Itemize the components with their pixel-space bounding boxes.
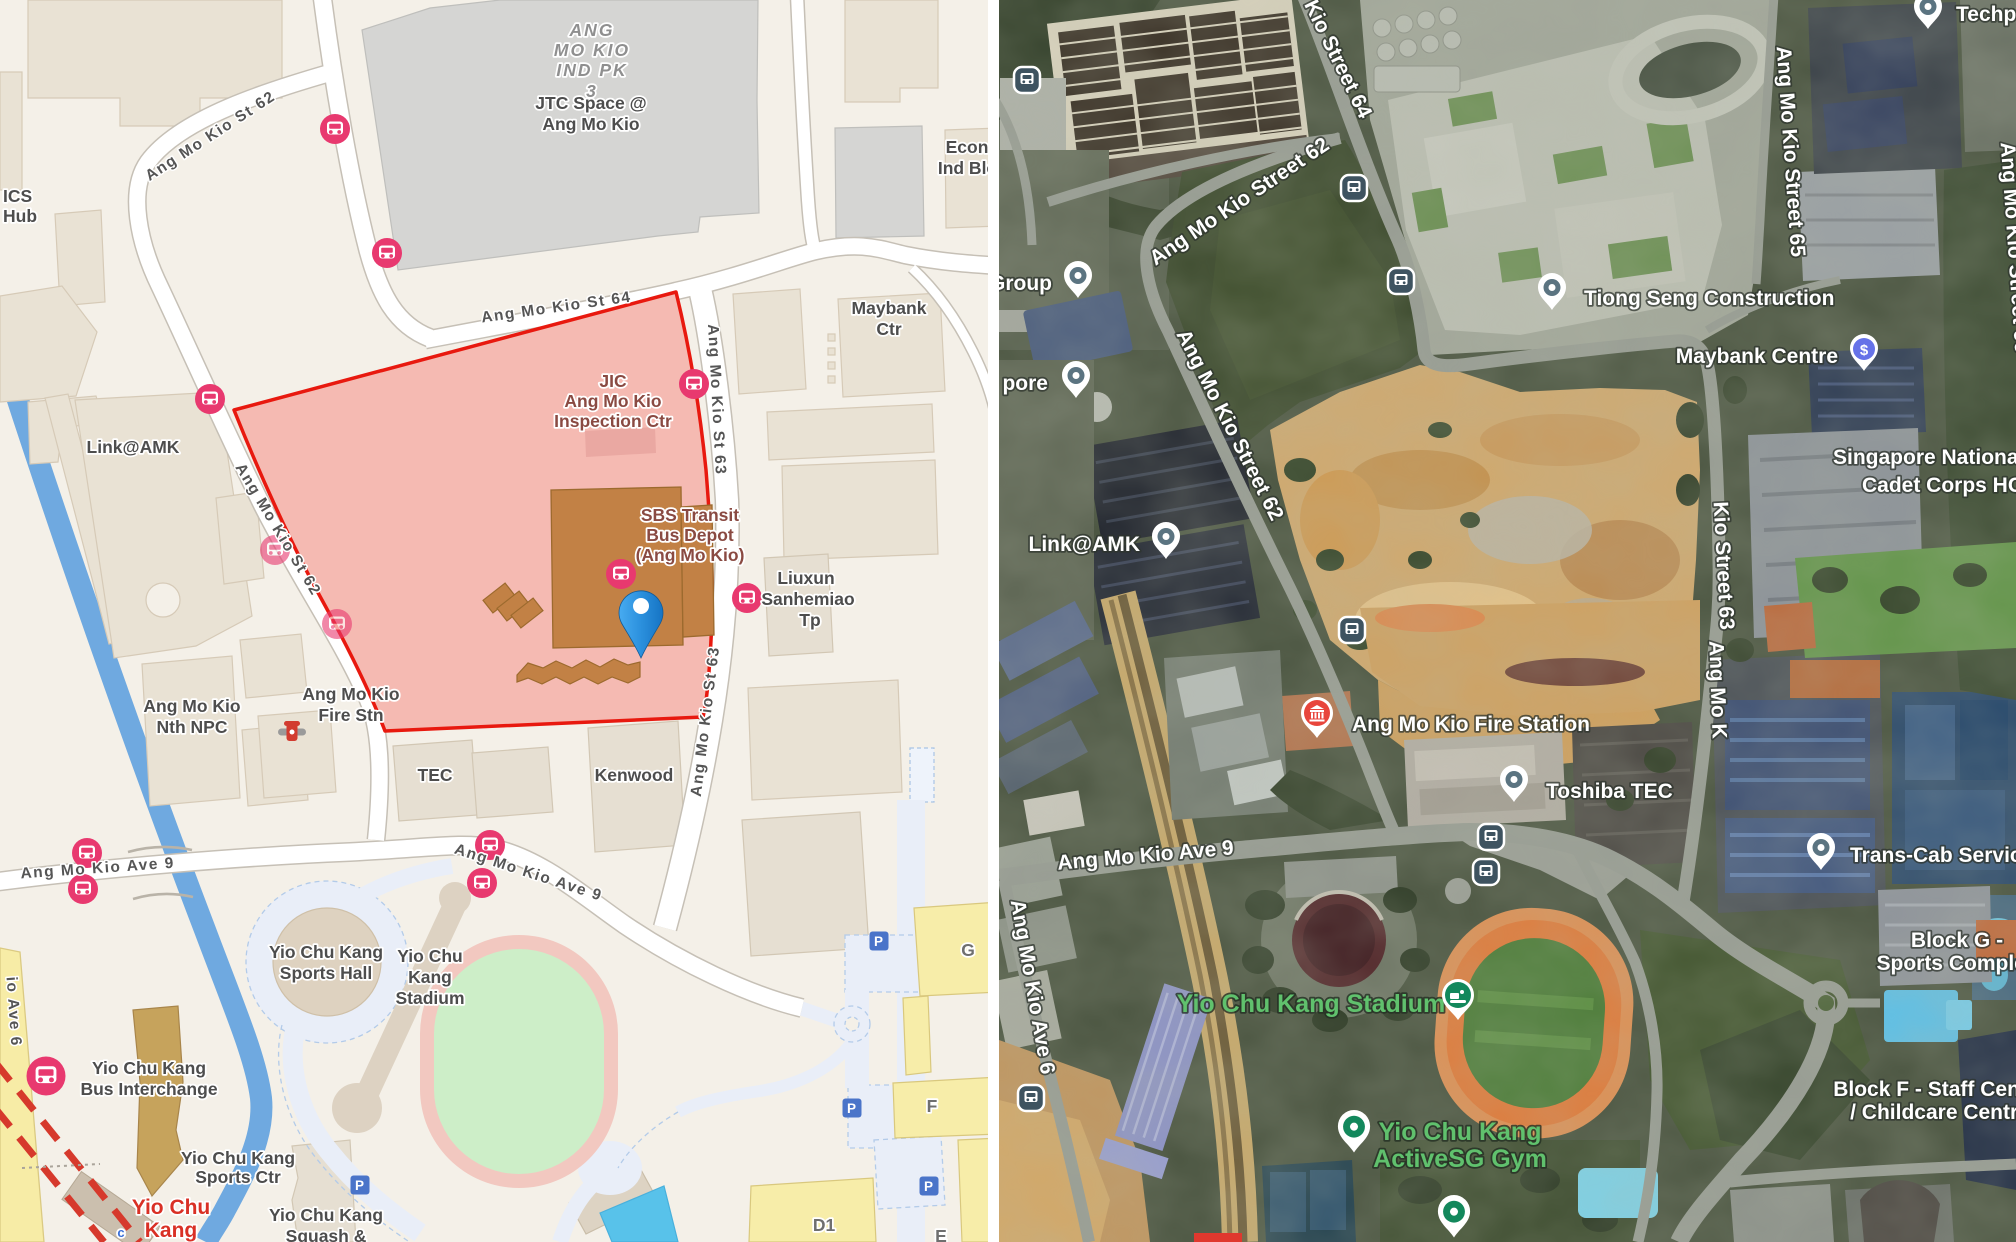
svg-text:Ind Blc: Ind Blc — [938, 158, 997, 178]
svg-text:Maybank Centre: Maybank Centre — [1676, 345, 1838, 368]
svg-text:pore: pore — [1002, 372, 1048, 395]
svg-text:Sports Complex: Sports Complex — [1876, 952, 2016, 975]
svg-text:Ang Mo Kio: Ang Mo Kio — [302, 684, 399, 704]
svg-text:JIC: JIC — [599, 371, 627, 391]
svg-text:Toshiba TEC: Toshiba TEC — [1546, 780, 1673, 803]
svg-text:Cadet Corps HC: Cadet Corps HC — [1862, 474, 2016, 497]
svg-text:Block F - Staff Centre: Block F - Staff Centre — [1833, 1078, 2016, 1101]
svg-text:Econ: Econ — [946, 137, 989, 157]
svg-text:Yio Chu Kang: Yio Chu Kang — [92, 1058, 206, 1078]
svg-text:Ctr: Ctr — [876, 319, 901, 339]
svg-text:Sanhemiao: Sanhemiao — [761, 589, 854, 609]
svg-text:Yio Chu: Yio Chu — [132, 1196, 211, 1219]
svg-text:Yio Chu Kang Stadium: Yio Chu Kang Stadium — [1177, 990, 1446, 1018]
svg-text:Bus Interchange: Bus Interchange — [80, 1079, 217, 1099]
svg-text:Maybank: Maybank — [852, 298, 927, 318]
svg-text:IND PK: IND PK — [556, 60, 627, 80]
svg-text:/ Childcare Centre: / Childcare Centre — [1850, 1101, 2016, 1124]
svg-text:Tp: Tp — [799, 610, 820, 630]
svg-text:Group: Group — [999, 272, 1052, 295]
svg-text:Yio Chu Kang: Yio Chu Kang — [269, 1205, 383, 1225]
svg-text:MO KIO: MO KIO — [554, 40, 630, 60]
svg-text:E: E — [935, 1226, 947, 1242]
svg-text:Link@AMK: Link@AMK — [87, 437, 180, 457]
svg-text:Bus Depot: Bus Depot — [646, 525, 734, 545]
svg-text:D1: D1 — [813, 1215, 836, 1235]
svg-text:ICS: ICS — [3, 186, 32, 206]
svg-text:F: F — [927, 1096, 938, 1116]
svg-text:c: c — [117, 1225, 124, 1240]
svg-text:Yio Chu Kang: Yio Chu Kang — [1379, 1118, 1542, 1146]
svg-text:Inspection Ctr: Inspection Ctr — [554, 411, 672, 431]
svg-text:Link@AMK: Link@AMK — [1029, 533, 1140, 556]
svg-text:Block G -: Block G - — [1911, 929, 2003, 952]
svg-text:JTC Space @: JTC Space @ — [535, 93, 646, 113]
svg-text:Kang: Kang — [408, 967, 452, 987]
svg-text:Techpor: Techpor — [1956, 3, 2016, 26]
svg-text:Kenwood: Kenwood — [595, 765, 674, 785]
svg-text:Nth NPC: Nth NPC — [157, 717, 228, 737]
svg-text:Tiong Seng Construction: Tiong Seng Construction — [1584, 287, 1834, 310]
svg-text:Kang: Kang — [145, 1219, 198, 1242]
svg-text:Ang Mo Kio: Ang Mo Kio — [143, 696, 240, 716]
svg-text:ANG: ANG — [569, 20, 615, 40]
svg-text:Sports Hall: Sports Hall — [280, 963, 372, 983]
svg-text:Trans-Cab Servic: Trans-Cab Servic — [1850, 844, 2016, 867]
svg-text:(Ang Mo Kio): (Ang Mo Kio) — [636, 545, 745, 565]
svg-text:Liuxun: Liuxun — [777, 568, 834, 588]
svg-text:Hub: Hub — [3, 206, 37, 226]
svg-text:TEC: TEC — [418, 765, 453, 785]
svg-text:Ang Mo K: Ang Mo K — [1704, 640, 1730, 739]
svg-text:Yio Chu Kang: Yio Chu Kang — [269, 942, 383, 962]
svg-text:Ang Mo Kio: Ang Mo Kio — [564, 391, 661, 411]
svg-text:Yio Chu: Yio Chu — [397, 946, 462, 966]
svg-text:Stadium: Stadium — [395, 988, 464, 1008]
svg-text:$: $ — [1860, 342, 1869, 359]
svg-text:Sports Ctr: Sports Ctr — [195, 1167, 281, 1187]
svg-text:ActiveSG Gym: ActiveSG Gym — [1373, 1145, 1547, 1173]
svg-text:Fire Stn: Fire Stn — [318, 705, 383, 725]
svg-text:Ang Mo Kio Fire Station: Ang Mo Kio Fire Station — [1352, 713, 1590, 736]
svg-text:Yio Chu Kang: Yio Chu Kang — [181, 1148, 295, 1168]
svg-text:Ang Mo Kio: Ang Mo Kio — [542, 114, 639, 134]
svg-text:Singapore Nationa: Singapore Nationa — [1833, 446, 2016, 469]
svg-text:G: G — [961, 940, 975, 960]
svg-text:SBS Transit: SBS Transit — [641, 505, 739, 525]
svg-text:Squash &: Squash & — [286, 1226, 367, 1242]
